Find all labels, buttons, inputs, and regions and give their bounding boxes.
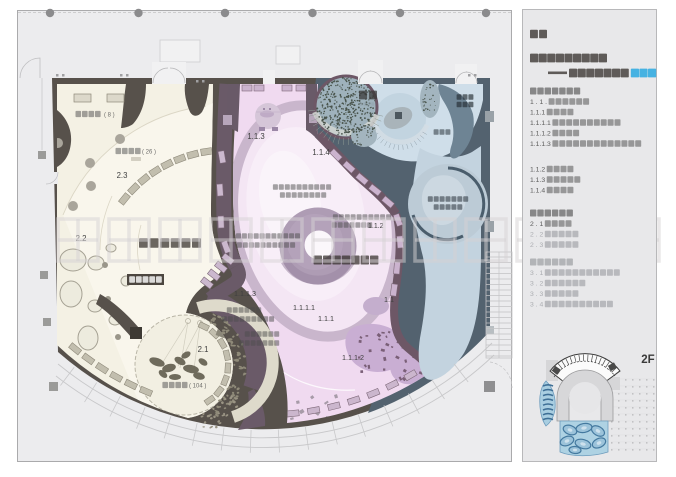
svg-text:2 . 1: 2 . 1 (530, 221, 543, 228)
svg-text:1.1.1.1: 1.1.1.1 (293, 303, 315, 312)
svg-text:1.1.3: 1.1.3 (247, 132, 264, 141)
svg-text:( 104 ): ( 104 ) (189, 384, 206, 390)
svg-text:1.1.1.3: 1.1.1.3 (234, 289, 256, 298)
svg-text:3 . 4: 3 . 4 (530, 302, 543, 309)
svg-text:1.1.1.1: 1.1.1.1 (530, 120, 551, 127)
svg-text:2 . 2: 2 . 2 (530, 232, 543, 239)
svg-text:( 26 ): ( 26 ) (142, 150, 156, 156)
svg-text:1.1.1.3: 1.1.1.3 (530, 141, 551, 148)
svg-text:1.1.1: 1.1.1 (318, 314, 334, 323)
svg-text:3 . 1: 3 . 1 (530, 270, 543, 277)
svg-text:2.3: 2.3 (117, 171, 128, 180)
svg-text:( 8 ): ( 8 ) (104, 113, 115, 119)
svg-text:1 . 1 .: 1 . 1 . (530, 99, 547, 106)
svg-text:1.1.1.2: 1.1.1.2 (530, 131, 551, 138)
svg-text:1.1: 1.1 (384, 295, 394, 304)
svg-text:2F: 2F (641, 354, 654, 366)
svg-text:1.1.3: 1.1.3 (530, 177, 545, 184)
svg-text:1.1.4: 1.1.4 (312, 148, 330, 157)
svg-text:1.1.2: 1.1.2 (530, 167, 545, 174)
svg-text:1.1.1.2: 1.1.1.2 (342, 353, 364, 362)
svg-text:3 . 3: 3 . 3 (530, 291, 543, 298)
svg-text:3 . 2: 3 . 2 (530, 281, 543, 288)
svg-text:1.1.1: 1.1.1 (530, 110, 545, 117)
svg-text:1.1.4: 1.1.4 (530, 188, 545, 195)
svg-text:2.1: 2.1 (198, 345, 209, 354)
svg-text:1.1.2: 1.1.2 (368, 223, 384, 230)
svg-text:2 . 3: 2 . 3 (530, 242, 543, 249)
